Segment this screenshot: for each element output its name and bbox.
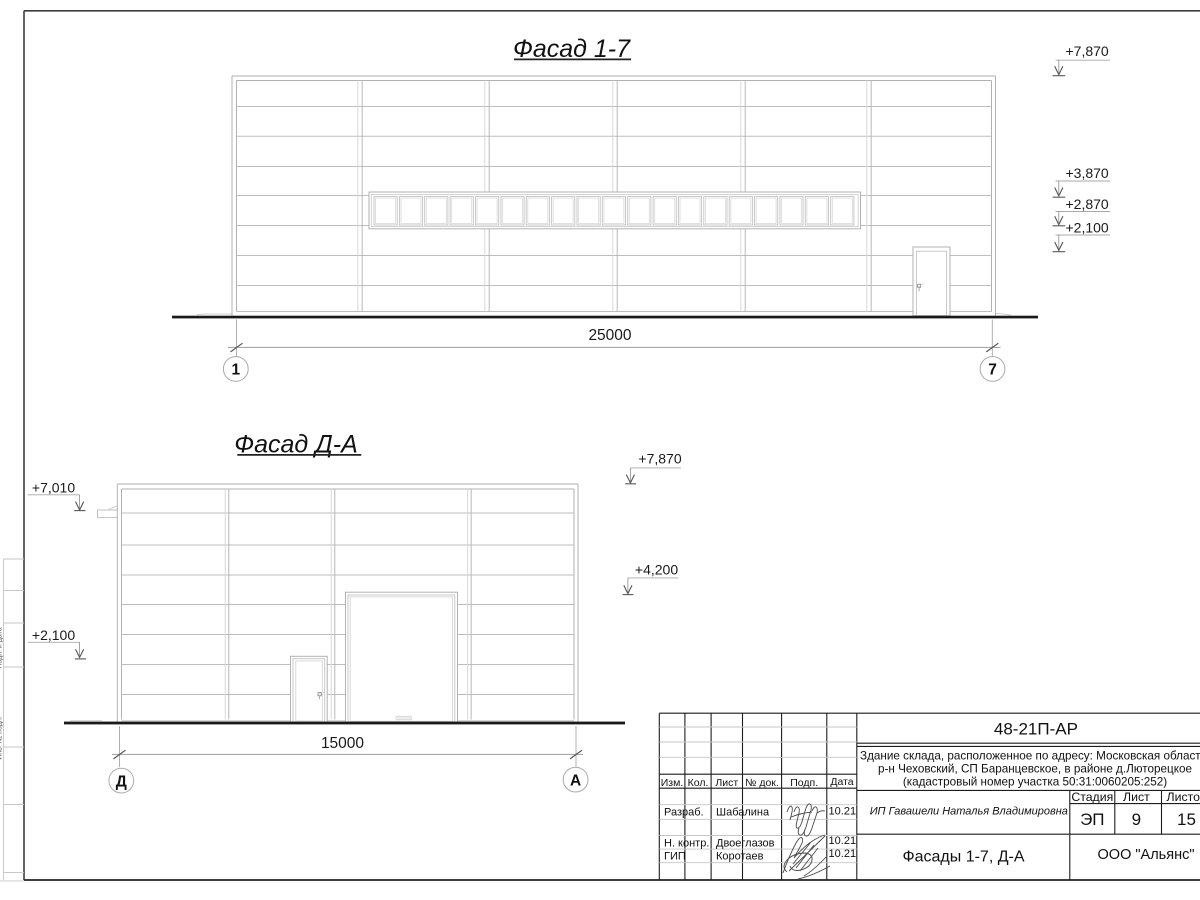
svg-text:Коротаев: Коротаев xyxy=(716,851,764,863)
svg-text:ЭП: ЭП xyxy=(1080,810,1104,829)
svg-text:7: 7 xyxy=(988,362,997,379)
svg-text:Подп.: Подп. xyxy=(790,777,818,789)
svg-text:Здание склада, расположенное п: Здание склада, расположенное по адресу: … xyxy=(860,750,1200,763)
svg-text:10.21: 10.21 xyxy=(829,835,857,847)
svg-text:10.21: 10.21 xyxy=(829,848,857,860)
svg-text:15000: 15000 xyxy=(321,735,364,752)
svg-text:Н. контр.: Н. контр. xyxy=(664,838,709,850)
svg-text:Дата: Дата xyxy=(830,776,853,788)
svg-text:48-21П-АР: 48-21П-АР xyxy=(994,720,1078,739)
svg-text:Стадия: Стадия xyxy=(1071,790,1113,804)
svg-text:+7,870: +7,870 xyxy=(1066,43,1109,59)
svg-text:Лист: Лист xyxy=(715,777,738,789)
svg-text:Фасады 1-7, Д-А: Фасады 1-7, Д-А xyxy=(902,849,1024,866)
svg-text:25000: 25000 xyxy=(588,327,631,344)
svg-text:+2,100: +2,100 xyxy=(1066,219,1109,235)
svg-text:Д: Д xyxy=(116,773,127,790)
svg-text:А: А xyxy=(570,772,581,789)
svg-text:Кол.: Кол. xyxy=(688,777,709,789)
svg-text:+7,870: +7,870 xyxy=(638,450,681,466)
svg-text:р-н Чеховский, СП Баранцевское: р-н Чеховский, СП Баранцевское, в районе… xyxy=(878,763,1192,776)
svg-text:Двоеглазов: Двоеглазов xyxy=(716,838,775,850)
svg-text:10.21: 10.21 xyxy=(829,806,857,818)
svg-text:+7,010: +7,010 xyxy=(32,479,75,495)
svg-text:9: 9 xyxy=(1132,810,1141,829)
svg-text:ИП Гавашели Наталья Владимиров: ИП Гавашели Наталья Владимировна xyxy=(870,806,1068,818)
svg-text:№ док.: № док. xyxy=(745,777,779,789)
svg-text:15: 15 xyxy=(1177,810,1196,829)
svg-text:ООО "Альянс": ООО "Альянс" xyxy=(1098,847,1195,863)
svg-text:Подп. и дата: Подп. и дата xyxy=(0,627,4,668)
svg-text:Листов: Листов xyxy=(1167,790,1200,804)
svg-text:+2,100: +2,100 xyxy=(32,627,75,643)
svg-text:+4,200: +4,200 xyxy=(635,562,678,578)
svg-text:(кадастровый номер участка 50:: (кадастровый номер участка 50:31:0060205… xyxy=(903,776,1167,789)
svg-text:Шабалина: Шабалина xyxy=(716,807,770,819)
svg-text:Разраб.: Разраб. xyxy=(664,807,704,819)
svg-text:+2,870: +2,870 xyxy=(1066,196,1109,212)
svg-text:Инв. № подл.: Инв. № подл. xyxy=(0,716,4,760)
svg-text:ГИП: ГИП xyxy=(664,851,686,863)
svg-text:Лист: Лист xyxy=(1123,790,1150,804)
svg-text:1: 1 xyxy=(231,361,240,378)
svg-text:Изм.: Изм. xyxy=(661,777,684,789)
svg-text:+3,870: +3,870 xyxy=(1066,165,1109,181)
